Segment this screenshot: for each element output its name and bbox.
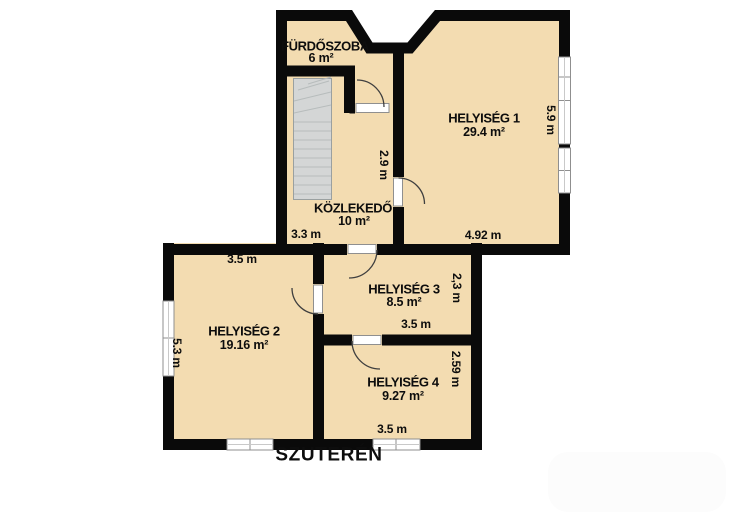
dim-room4-height: 2.59 m [450,351,462,387]
background-watermark [548,452,726,512]
room-area-helyiseg-3: 8.5 m² [387,296,422,309]
door-sill-room3 [348,245,376,254]
room-area-kozlekedo: 10 m² [338,215,370,228]
door-sill-room4 [353,336,381,345]
dim-room3-width: 3.5 m [401,318,431,330]
room-label-helyiseg-3: HELYISÉG 3 [368,283,439,296]
room-area-furdoszoba: 6 m² [309,52,334,65]
door-sill-room1 [394,178,403,206]
room-area-helyiseg-1: 29.4 m² [463,126,505,139]
dim-room2-height: 5.3 m [171,338,183,368]
stairs [294,77,332,200]
room-label-helyiseg-4: HELYISÉG 4 [367,376,438,389]
floor-title: SZUTERÉN [275,446,382,465]
room-label-helyiseg-2: HELYISÉG 2 [208,325,279,338]
dim-room4-width: 3.5 m [377,423,407,435]
room-label-helyiseg-1: HELYISÉG 1 [448,112,519,125]
dim-kozlekedo-width: 3.3 m [291,228,321,240]
floor-plan: FÜRDŐSZOBA 6 m² HELYISÉG 1 29.4 m² KÖZLE… [0,0,730,516]
dim-room1-height: 5.9 m [545,105,557,135]
dim-kozlekedo-height: 2.9 m [378,150,390,180]
room-label-kozlekedo: KÖZLEKEDŐ [314,202,392,215]
dim-room1-width: 4.92 m [465,229,501,241]
dim-room2-width: 3.5 m [227,253,257,265]
dim-room3-height: 2,3 m [451,273,463,303]
floor-plan-drawing [0,0,730,516]
room-area-helyiseg-2: 19.16 m² [220,339,268,352]
door-sill-room2 [314,285,323,313]
room-area-helyiseg-4: 9.27 m² [382,390,424,403]
